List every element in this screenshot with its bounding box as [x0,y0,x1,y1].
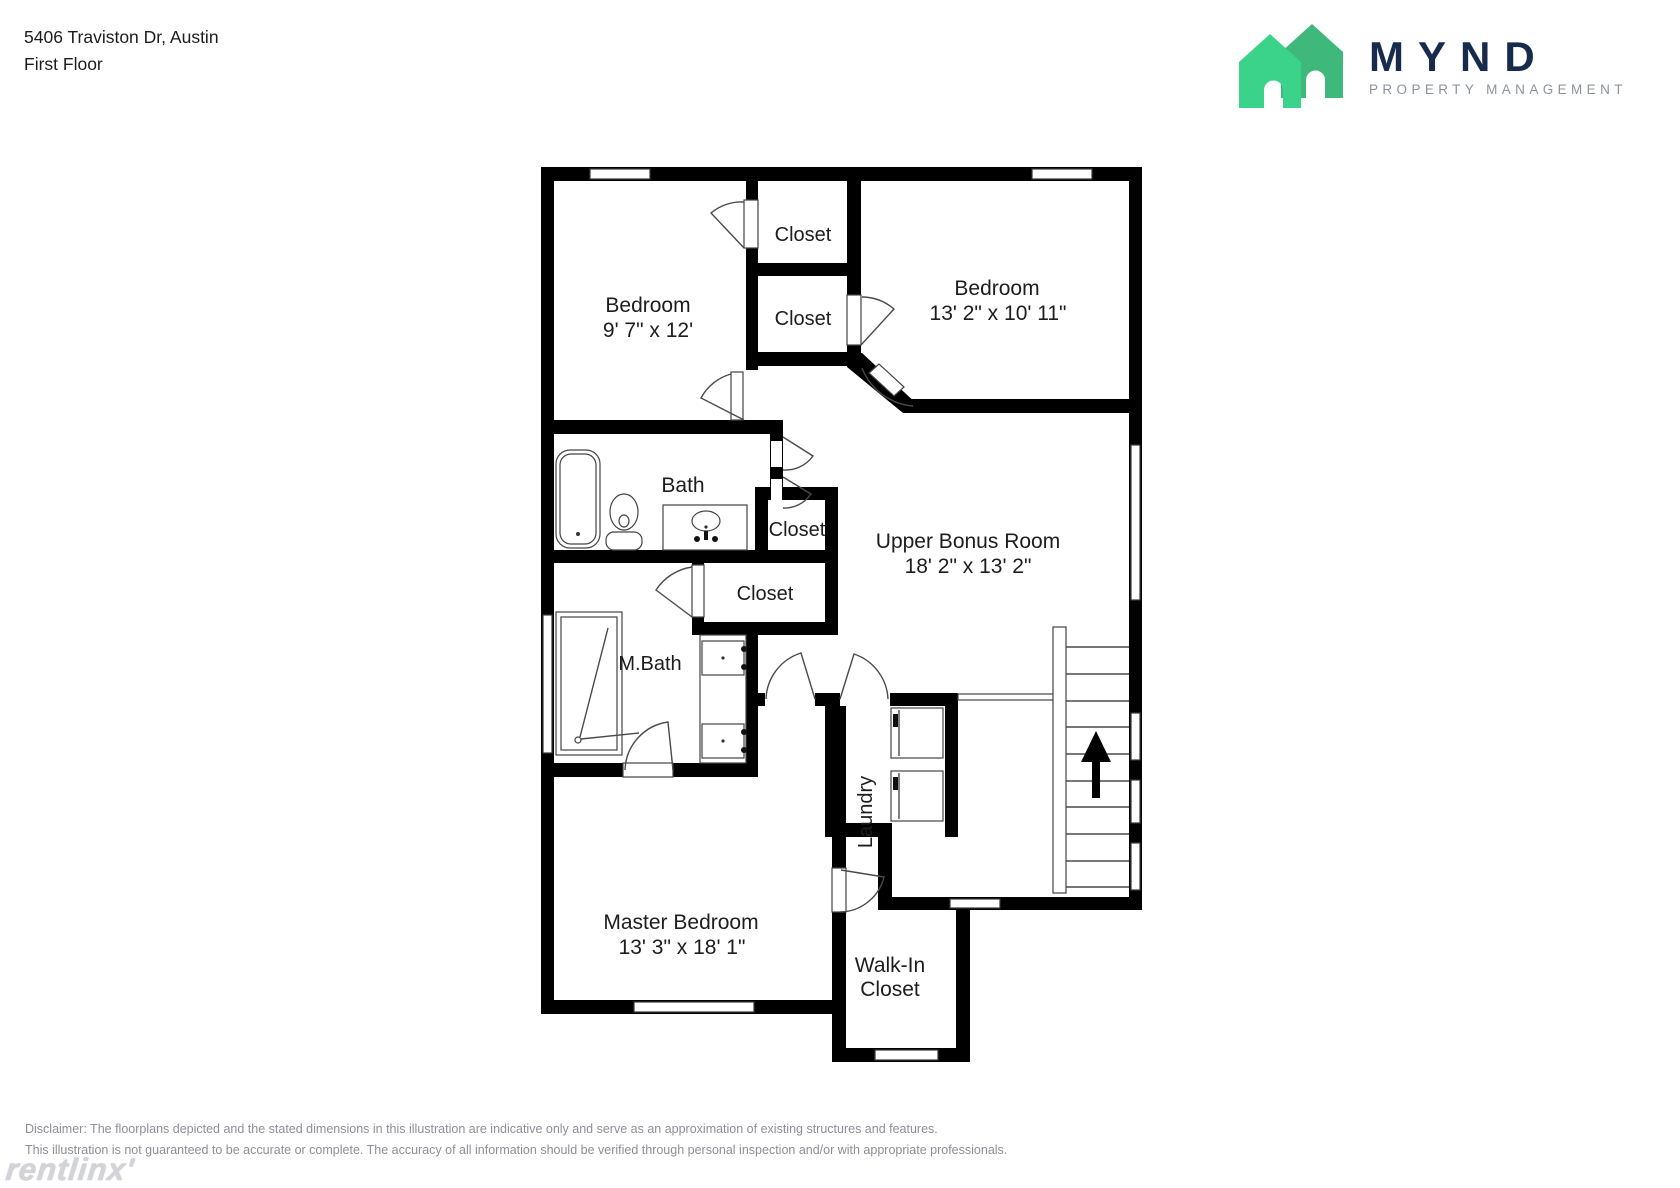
window [543,615,552,753]
room-dimensions: 13' 2" x 10' 11" [930,302,1067,325]
door-leaf [744,200,758,248]
stair-stringer [1053,627,1066,893]
room-laundry: Laundry [855,776,877,848]
room-closet-top-2: Closet [775,308,832,330]
floorplan: Bedroom 9' 7" x 12' Closet Closet Bedroo… [0,0,1680,1188]
washer-icon [891,708,943,758]
shower-icon [556,612,639,755]
bathtub-icon [556,450,600,548]
room-label: Bedroom [605,294,690,317]
stairs-up-arrow-icon [1081,731,1111,798]
door-swing [766,653,815,699]
window [1131,843,1140,890]
room-upper-bonus: Upper Bonus Room 18' 2" x 13' 2" [876,530,1060,578]
door-swing [840,654,888,699]
room-mbath: M.Bath [618,653,681,675]
room-dimensions: 9' 7" x 12' [603,319,693,342]
door-swing [711,202,744,248]
room-bedroom-1: Bedroom 9' 7" x 12' [603,294,693,342]
window [1131,445,1140,600]
window [1131,713,1140,760]
room-label: Upper Bonus Room [876,530,1060,553]
window [590,169,650,179]
door-leaf [692,565,704,617]
door-swing [656,567,692,617]
disclaimer-line-1: Disclaimer: The floorplans depicted and … [25,1122,938,1136]
door-leaf [623,763,673,777]
room-closet-mid: Closet [769,519,826,541]
double-vanity-icon [700,635,747,763]
window [634,1002,754,1012]
room-bedroom-2: Bedroom 13' 2" x 10' 11" [930,277,1067,325]
dryer-icon [891,771,943,821]
window [1131,780,1140,823]
room-walkin: Walk-In Closet [855,954,925,1001]
room-label-line2: Closet [860,978,920,1001]
window [950,899,1000,908]
room-label-line1: Walk-In [855,954,925,977]
rentlinx-watermark: rentlinx' [4,1152,136,1188]
room-label: Bedroom [954,277,1039,300]
stair-railing [958,694,1054,700]
window [1032,169,1092,179]
door-leaf [847,295,861,345]
room-bath: Bath [661,474,704,497]
door-swing [783,437,813,470]
room-label: Master Bedroom [603,911,758,934]
toilet-icon [606,494,642,550]
door-leaf [832,868,846,912]
window [875,1050,938,1060]
door-leaf [731,372,743,420]
room-closet-hall: Closet [737,583,794,605]
room-dimensions: 13' 3" x 18' 1" [619,936,746,959]
room-closet-top-1: Closet [775,224,832,246]
stairs [958,627,1129,893]
room-master: Master Bedroom 13' 3" x 18' 1" [603,911,758,959]
disclaimer-line-2: This illustration is not guaranteed to b… [25,1143,1007,1157]
sink-vanity-icon [663,505,747,550]
room-dimensions: 18' 2" x 13' 2" [905,555,1032,578]
door-swing [861,297,894,345]
